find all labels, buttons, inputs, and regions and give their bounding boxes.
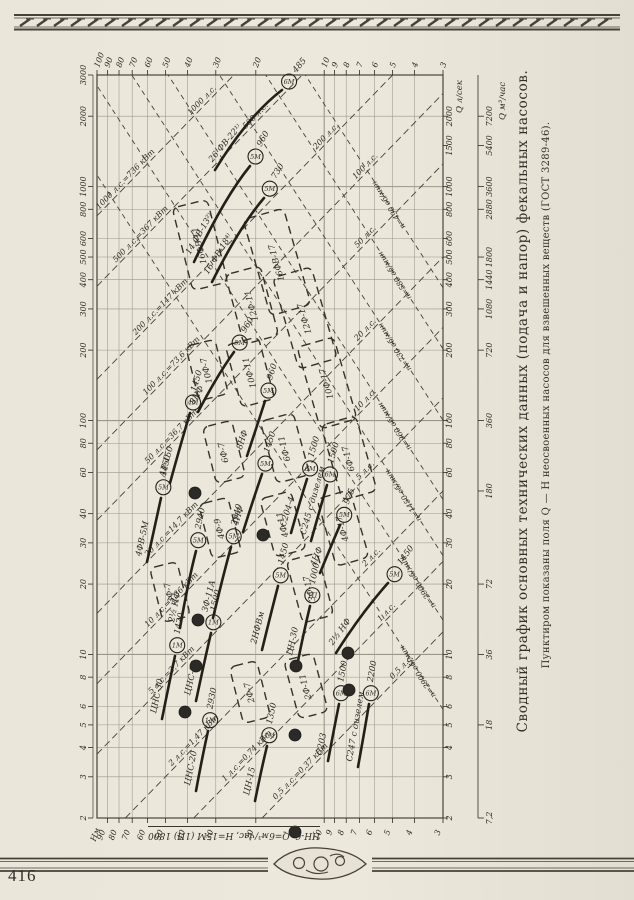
tick-label-q-left: 200 (79, 342, 88, 358)
pump-rpm: 975 (342, 487, 357, 506)
chain-link-icon (54, 19, 64, 26)
pump-rpm: 1500 (307, 435, 323, 459)
tick-label-h-top: 6 (370, 61, 380, 69)
pump-point-dot (342, 647, 354, 659)
pump-point-dot (189, 487, 201, 499)
pump-rpm: 1450 (159, 453, 174, 477)
chain-link-icon (309, 19, 319, 26)
pump-rpm: 485 (290, 56, 309, 76)
chain-link-icon (530, 19, 540, 26)
tick-label-q-left: 500 (79, 249, 88, 264)
book-page: 3000200010008006005004003002001008060403… (0, 0, 634, 900)
tick-label-q-right: 5 (445, 722, 454, 727)
speed-line (97, 86, 443, 620)
chain-link-icon (462, 19, 472, 26)
pump-field-label: 10Ф-11 (241, 356, 259, 389)
pump-rpm: 1450 (395, 543, 416, 567)
chain-link-icon (445, 19, 455, 26)
tick-label-h-top: 30 (211, 56, 223, 69)
tick-label-q-left: 8 (79, 675, 88, 680)
tick-label-q-right: 1500 (445, 135, 454, 155)
figure-title: Сводный график основных технических данн… (514, 31, 532, 771)
motor-code: 1М (264, 732, 275, 740)
pump-rpm: 730 (270, 161, 287, 181)
tick-label-q-left: 30 (79, 538, 88, 548)
tick-label-h-bottom: 3 (433, 829, 443, 837)
chain-link-icon (513, 19, 523, 26)
tick-label-q-m3h: 7,2 (485, 812, 494, 825)
speed-line-label: n=1450 об/мин (383, 468, 423, 523)
tick-label-h-bottom: 7 (349, 828, 360, 837)
tick-label-q-left: 1000 (79, 176, 88, 196)
chain-link-icon (139, 19, 149, 26)
pump-rpm: 960 (255, 129, 272, 149)
tick-label-q-left: 5 (79, 722, 88, 727)
pump-point-dot (290, 660, 302, 672)
figure-subtitle: Пунктиром показаны поля Q — Н неосвоенны… (540, 45, 554, 745)
tick-label-q-left: 60 (79, 467, 88, 477)
chain-link-icon (547, 19, 557, 26)
motor-code: 5М (193, 537, 204, 545)
tick-label-q-left: 4 (79, 745, 88, 751)
tick-label-q-m3h: 3600 (485, 176, 494, 196)
tick-label-q-m3h: 5400 (485, 135, 494, 155)
tick-label-q-m3h: 360 (485, 413, 494, 428)
power-line-label-short: 1000 л.с. (186, 84, 219, 117)
tick-label-q-right: 600 (445, 231, 454, 246)
axis-title-q-m3h: Q м³/час (498, 82, 508, 120)
chain-link-icon (428, 19, 438, 26)
tick-label-q-left: 10 (79, 649, 88, 659)
pump-rpm: 1350 (265, 701, 280, 725)
chain-link-icon (122, 19, 132, 26)
tick-label-q-left: 3000 (79, 65, 88, 85)
scroll-ornament-icon (274, 848, 366, 879)
chain-link-icon (224, 19, 234, 26)
tick-label-h-top: 4 (410, 61, 421, 70)
motor-code: 5М (260, 460, 271, 468)
tick-label-q-right: 800 (445, 202, 454, 217)
tick-label-h-bottom: 5 (382, 829, 392, 837)
pump-annotation-cn6: ЦН-6, Q=6м³/час, Н=15М (1П) 1800 (148, 826, 320, 842)
tick-label-q-m3h: 72 (485, 579, 494, 589)
tick-label-h-top: 90 (103, 56, 115, 69)
pump-field-label: 6Ф-11 (277, 435, 293, 463)
pump-curve-label: 8НФ (235, 429, 251, 451)
motor-code: 6М (365, 689, 376, 697)
tick-label-h-top: 8 (342, 61, 352, 69)
motor-code: 5М (250, 153, 261, 161)
tick-label-h-bottom: 9 (324, 829, 334, 837)
tick-label-q-left: 6 (79, 704, 88, 709)
speed-line (305, 75, 443, 288)
pump-curve (328, 704, 339, 761)
pump-point-dot (343, 684, 355, 696)
tick-label-h-top: 50 (161, 56, 173, 69)
motor-code: 1М (208, 619, 219, 627)
motor-code: 6М (284, 78, 295, 86)
chain-link-icon (343, 19, 353, 26)
tick-label-h-top: 7 (355, 60, 366, 69)
tick-label-q-m3h: 18 (485, 720, 494, 730)
tick-label-q-right: 8 (445, 675, 454, 680)
chain-link-icon (37, 19, 47, 26)
chain-link-icon (88, 19, 98, 26)
pump-curve-label: 26 ФВ-22¹⁾ (206, 123, 244, 165)
tick-label-h-top: 20 (251, 56, 263, 70)
tick-label-q-left: 100 (79, 413, 88, 428)
chain-link-icon (326, 19, 336, 26)
tick-label-q-left: 400 (79, 272, 88, 288)
pump-field-label: 2Ф-7 (243, 681, 258, 705)
pump-rpm: 1500 (336, 659, 350, 683)
tick-label-h-bottom: 60 (135, 829, 147, 842)
chain-link-icon (275, 19, 285, 26)
pump-point-dot (192, 614, 204, 626)
pump-field-label: 4Ф-9 (213, 517, 228, 541)
chain-link-icon (292, 19, 302, 26)
tick-label-q-right: 6 (445, 704, 454, 709)
tick-label-q-m3h: 2880 (485, 199, 494, 220)
tick-label-q-right: 200 (445, 342, 454, 358)
pump-rpm: 2200 (366, 659, 380, 684)
motor-code: 5М (264, 185, 275, 193)
motor-code: 1М (205, 717, 216, 725)
tick-label-h-top: 5 (388, 61, 398, 69)
tick-label-q-right: 3 (445, 774, 454, 779)
tick-label-q-right: 1000 (445, 176, 454, 196)
chain-link-icon (581, 19, 591, 26)
tick-label-q-m3h: 720 (485, 342, 494, 357)
chain-link-icon (173, 19, 183, 26)
tick-label-h-top: 80 (114, 56, 126, 69)
pump-point-dot (289, 729, 301, 741)
speed-line-label: n=2900 об/мин (397, 644, 437, 699)
pump-field-label: 12Ф-17 (296, 301, 314, 335)
motor-code: 5М (234, 339, 245, 347)
tick-label-q-left: 80 (79, 438, 88, 448)
speed-line-label: n=730 об/мин (376, 321, 414, 372)
motor-code: 5М (263, 387, 274, 395)
power-line-label-short: 200 л.с. (311, 121, 341, 151)
speed-line-label: n=960 об/мин (376, 401, 414, 452)
tick-label-q-right: 4 (445, 745, 454, 751)
speed-line-label: n=580 об/мин (376, 250, 414, 301)
chain-link-icon (207, 19, 217, 26)
pump-field-label: 16ФВ-17 (267, 242, 287, 282)
pump-point-dot (179, 706, 191, 718)
chain-link-icon (360, 19, 370, 26)
tick-label-q-left: 40 (79, 509, 88, 520)
tick-label-q-left: 3 (79, 774, 88, 779)
axis-title-q-lsec: Q л/сек (455, 79, 465, 113)
tick-label-h-bottom: 80 (107, 829, 119, 842)
motor-code: 6М (325, 471, 336, 479)
pump-rpm: 960 (265, 362, 280, 381)
power-line-label-short: 50 л.с. (352, 224, 378, 250)
tick-label-q-right: 60 (445, 467, 454, 477)
tick-label-q-right: 2 (445, 815, 454, 821)
chain-link-icon (564, 19, 574, 26)
tick-label-q-left: 2 (79, 815, 88, 821)
tick-label-q-right: 40 (445, 509, 454, 520)
motor-code: 5М (158, 484, 169, 492)
tick-label-h-bottom: 8 (336, 829, 346, 837)
tick-label-h-top: 3 (438, 61, 448, 69)
tick-label-h-bottom: 6 (364, 829, 374, 837)
chain-link-icon (105, 19, 115, 26)
tick-label-q-m3h: 1800 (485, 247, 494, 267)
pump-field-label: 6Ф-17 (341, 444, 358, 472)
tick-label-h-top: 70 (128, 56, 140, 69)
tick-label-q-left: 300 (79, 301, 88, 316)
pump-curve-label: С203 (315, 732, 329, 756)
tick-label-q-m3h: 36 (485, 649, 494, 659)
chain-link-icon (190, 19, 200, 26)
tick-label-h-bottom: 70 (120, 829, 132, 842)
tick-label-q-left: 800 (79, 202, 88, 217)
chain-link-icon (377, 19, 387, 26)
power-line-label-full: 200 л.с.=147 кВт (130, 276, 190, 337)
motor-code: 5М (275, 572, 286, 580)
motor-code: 4М (187, 399, 199, 407)
chain-link-icon (241, 19, 251, 26)
chain-link-icon (258, 19, 268, 26)
chain-link-icon (411, 19, 421, 26)
page-number: 416 (8, 866, 37, 886)
pump-curve-label: С247 с дизелем (345, 691, 367, 763)
tick-label-h-top: 9 (330, 61, 340, 69)
tick-label-q-left: 600 (79, 231, 88, 246)
chain-link-icon (394, 19, 404, 26)
tick-label-q-right: 300 (445, 301, 454, 316)
motor-code: 6М (305, 465, 316, 473)
tick-label-q-m3h: 7200 (485, 106, 494, 126)
chain-link-icon (598, 19, 608, 26)
chain-link-icon (496, 19, 506, 26)
tick-label-h-top: 40 (182, 56, 194, 70)
chain-link-icon (20, 19, 30, 26)
chain-link-icon (479, 19, 489, 26)
motor-code: 5М (339, 511, 350, 519)
tick-label-q-right: 2000 (445, 106, 454, 127)
pump-chart-canvas: 3000200010008006005004003002001008060403… (0, 0, 634, 900)
power-line-label-short: 100 л.с. (351, 151, 380, 181)
tick-label-q-right: 100 (445, 413, 454, 428)
motor-code: 5М (389, 570, 400, 578)
tick-label-h-bottom: 4 (404, 829, 415, 838)
tick-label-q-left: 2000 (79, 106, 88, 127)
tick-label-q-right: 30 (445, 538, 454, 548)
motor-code: 5М (228, 533, 239, 541)
tick-label-q-left: 20 (79, 579, 88, 590)
tick-label-q-right: 20 (445, 579, 454, 590)
pump-field-label: 6Ф-7 (217, 441, 232, 464)
tick-label-q-m3h: 1080 (485, 299, 494, 319)
pump-point-dot (190, 660, 202, 672)
tick-label-q-right: 80 (445, 438, 454, 448)
tick-label-q-m3h: 1440 (485, 270, 494, 290)
motor-code: 1П (307, 592, 317, 600)
tick-label-q-m3h: 180 (485, 483, 494, 498)
pump-rpm: 2930 (205, 686, 219, 711)
motor-code: 1М (172, 642, 183, 650)
power-line-label-full: 500 л.с.=367 кВт (111, 204, 170, 265)
tick-label-q-right: 400 (445, 272, 454, 288)
tick-label-h-top: 10 (320, 56, 332, 69)
tick-label-q-right: 10 (445, 649, 454, 659)
chain-link-icon (71, 19, 81, 26)
tick-label-h-top: 60 (143, 56, 155, 69)
chain-link-icon (156, 19, 166, 26)
power-line-label-short: 10 л.с. (352, 387, 378, 413)
tick-label-q-right: 500 (445, 249, 454, 264)
pump-point-dot (257, 529, 269, 541)
power-line-label-short: 20 л.с. (352, 317, 378, 344)
